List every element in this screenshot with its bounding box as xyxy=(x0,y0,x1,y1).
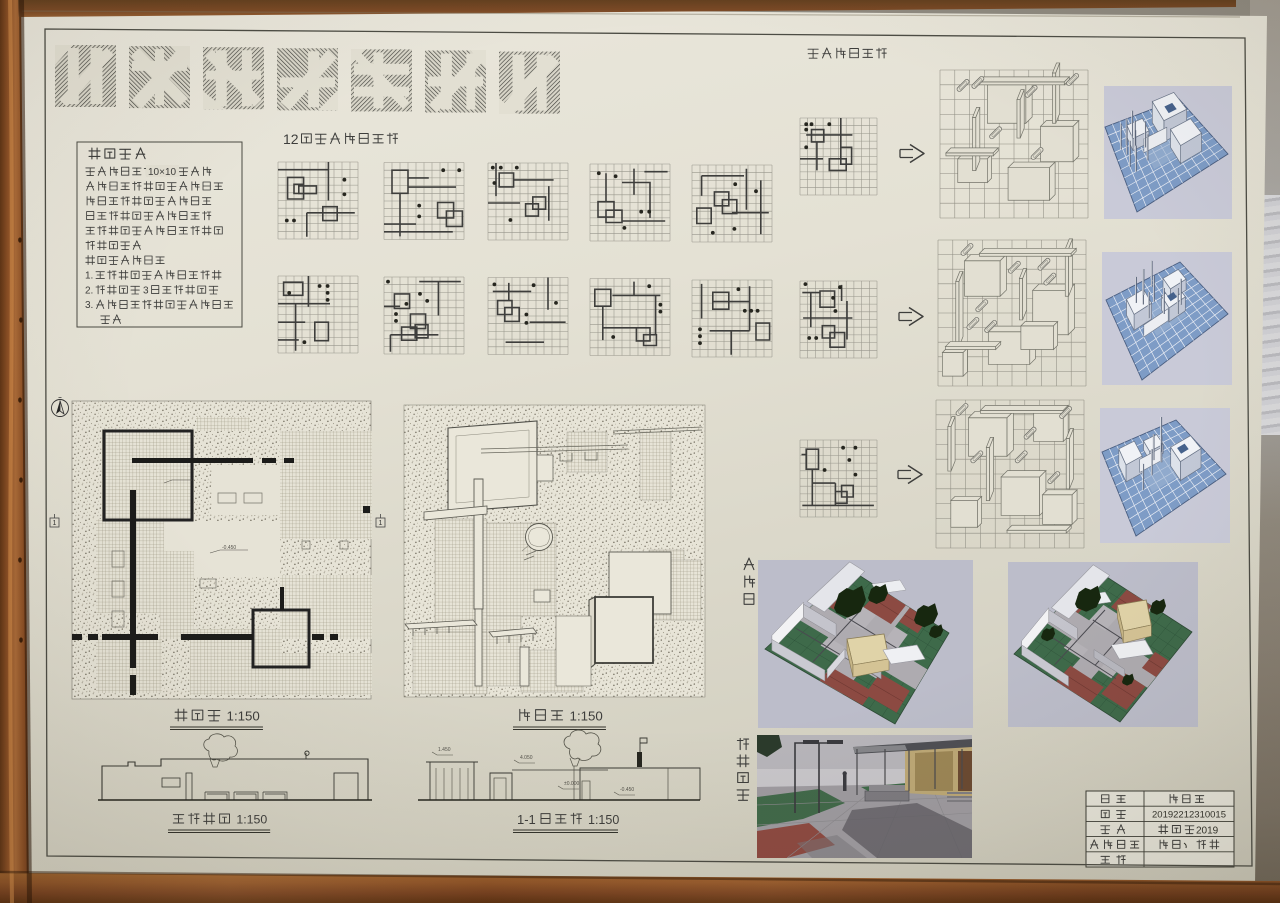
svg-text:1: 1 xyxy=(53,520,57,527)
svg-text:3.: 3. xyxy=(85,300,93,311)
svg-text:-0.450: -0.450 xyxy=(222,545,236,551)
svg-text:10×10: 10×10 xyxy=(148,167,177,178)
svg-text:1:150: 1:150 xyxy=(588,813,619,827)
svg-text:3: 3 xyxy=(143,285,149,296)
svg-text:2019: 2019 xyxy=(1196,825,1219,836)
svg-text:12: 12 xyxy=(283,131,299,147)
svg-text:20192212310015: 20192212310015 xyxy=(1152,810,1226,821)
svg-text:4.050: 4.050 xyxy=(520,755,533,761)
svg-text:1-1: 1-1 xyxy=(517,812,536,827)
svg-text:1: 1 xyxy=(379,520,383,527)
svg-text:-0.450: -0.450 xyxy=(620,787,634,793)
svg-text:1.450: 1.450 xyxy=(438,747,451,753)
svg-text:1:150: 1:150 xyxy=(570,709,603,724)
svg-text:1.: 1. xyxy=(85,271,93,282)
svg-text:1:150: 1:150 xyxy=(227,709,260,724)
svg-text:2.: 2. xyxy=(85,285,93,296)
svg-text:±0.000: ±0.000 xyxy=(564,781,579,787)
svg-text:1:150: 1:150 xyxy=(236,813,267,827)
